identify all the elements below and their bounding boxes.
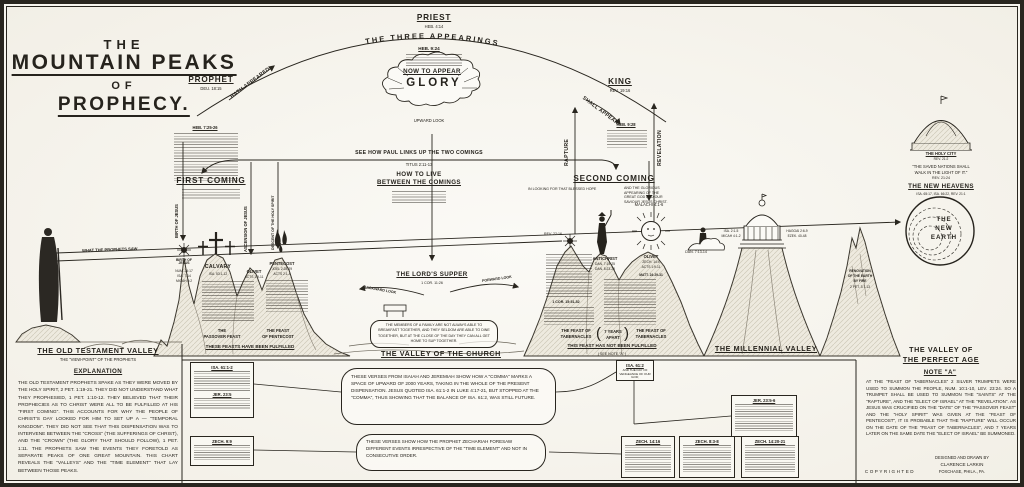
fine-print-pentecost-face	[266, 280, 308, 312]
temple-mount	[704, 248, 820, 356]
zechariah-bubble: THESE VERSES SHOW HOW THE PROPHET ZECHAR…	[356, 434, 546, 471]
valley-of-church-label: THE VALLEY OF THE CHURCH	[381, 350, 501, 357]
birth-peak-ref-1: NUM. 24:17	[175, 270, 193, 273]
holy-city-label: THE HOLY CITY	[926, 152, 957, 156]
holy-city-icon	[910, 96, 972, 150]
bethlehem-star-icon	[177, 243, 191, 257]
fine-print-zech99	[194, 445, 250, 461]
verse-box-zech1416: ZECH. 14:16	[621, 436, 675, 478]
heb924-ref: HEB. 9:24	[418, 47, 439, 52]
birth-of-jesus-line-label: BIRTH OF JESUS	[175, 204, 179, 238]
credits-line2: CLARENCE LARKIN	[941, 463, 984, 468]
olivet1-peak-ref: ACTS 1:9-11	[245, 276, 264, 279]
olivet2-ref-3: MATT. 24:29-31	[639, 274, 663, 277]
title-the: THE	[104, 38, 145, 51]
heb928-ref: HEB. 9:28	[616, 123, 635, 127]
passover-feast-line1: THE	[218, 329, 226, 333]
glory-label: GLORY	[406, 78, 461, 90]
lords-supper-ref: 1 COR. 11:26	[421, 282, 443, 286]
comma-bubble: THESE VERSES FROM ISAIAH AND JEREMIAH SH…	[341, 368, 556, 425]
brace-right: )	[624, 326, 629, 341]
saved-nations-ref: REV. 21:24	[932, 177, 950, 181]
explanation-title: EXPLANATION	[74, 369, 122, 375]
prophet-figure	[16, 228, 80, 342]
descent-holy-spirit-line-label: DESCENT OF THE HOLY SPIRIT	[272, 195, 276, 250]
verse-box-zech1420-ref: ZECH. 14:20-21	[744, 439, 796, 444]
priest-ref: HEB. 4:14	[425, 25, 444, 29]
note-a-body: AT THE "FEAST OF TABERNACLES" 2 SILVER T…	[866, 379, 1016, 438]
seven-years-line2: APART	[606, 336, 620, 340]
antichrist-ref-1: DAN. 7:19-25	[595, 263, 615, 266]
antichrist-figure	[597, 210, 611, 254]
prophecy-chart: THE THREE APPEARINGS	[0, 0, 1024, 487]
ascension-line-label: ASCENSION OF JESUS	[244, 206, 248, 252]
new-heavens-label: THE NEW HEAVENS	[908, 184, 974, 190]
king-ref: REV. 19:16	[610, 89, 631, 93]
lords-supper-label: THE LORD'S SUPPER	[396, 272, 467, 278]
priest-label: PRIEST	[417, 14, 451, 22]
fine-print-jer235	[194, 398, 250, 410]
now-to-appear-label: NOW TO APPEAR	[403, 69, 461, 75]
olivet2-ref-1: ZECH. 14:4	[642, 261, 659, 264]
pentecost-peak-ref-1: JOEL 2:28-29	[272, 268, 292, 271]
see-note-a-label: ( SEE NOTE "A" )	[598, 353, 627, 357]
birth-peak-ref-3: MICAH 5:2	[176, 280, 192, 283]
renovation-line1: RENOVATION	[849, 270, 871, 273]
upward-look-label: UPWARD LOOK	[412, 118, 446, 125]
first-coming-label: FIRST COMING	[176, 177, 245, 185]
verse-box-isa6112: ISA. 61:1-2 JER. 23:5	[190, 362, 254, 418]
olivet2-peak-name: OLIVET	[644, 255, 659, 259]
perfect-age-label-2: THE PERFECT AGE	[903, 356, 979, 363]
birth-peak-ref-2: ISA. 7:14	[177, 275, 191, 278]
fine-print-zech838	[683, 445, 731, 473]
feast-not-fulfilled-label: THIS FEAST HAS NOT BEEN FULFILLED	[567, 344, 656, 349]
king-label: KING	[608, 78, 632, 86]
heb725-ref: HEB. 7:25-26	[192, 126, 217, 130]
credits-line1: DESIGNED AND DRAWN BY	[935, 456, 989, 460]
pentecost-feast-line2: OF PENTECOST	[262, 335, 294, 339]
new-earth-line2: NEW	[935, 226, 952, 232]
fine-print-heb928	[607, 130, 647, 148]
temple-ref-right-2: EZEK. 40-48	[788, 235, 807, 238]
renovation-ref: 2 PET. 3:7-13	[850, 286, 870, 289]
fine-print-heb725	[174, 133, 238, 181]
malachi-ref: MALACHI 4:1-6	[635, 203, 664, 207]
calvary-crosses-icon	[198, 232, 235, 255]
fine-print-zech1416	[625, 445, 671, 473]
titus-ref: TITUS 2:11-13	[406, 163, 433, 167]
renovation-line3: BY FIRE	[854, 280, 867, 283]
verse-box-zech99-ref: ZECH. 9:9	[193, 439, 251, 444]
how-to-live-label: HOW TO LIVE	[396, 172, 441, 178]
olivet2-ref-2: ACTS 1:9-11	[642, 266, 661, 269]
saved-nations-quote-2: WALK IN THE LIGHT OF IT."	[915, 171, 968, 175]
ot-valley-sub-label: THE "VIEW-POINT" OF THE PROPHETS	[60, 358, 136, 362]
verse-box-isa612: ISA. 61:2 AND THE DAY OF VENGEANCE OF OU…	[616, 360, 654, 381]
son-of-man-cloud-figure	[688, 228, 725, 251]
verse-box-jer2356-ref: JER. 23:5-6	[734, 398, 794, 403]
verse-box-isa612-line: AND THE DAY OF VENGEANCE OF OUR GOD;	[619, 369, 651, 380]
supper-table-icon	[384, 305, 406, 317]
seven-years-line1: 7 YEARS	[604, 330, 621, 334]
pentecost-flames-icon	[275, 229, 287, 252]
fine-print-olivet2-face	[604, 279, 656, 325]
pentecost-feast-line1: THE FEAST	[267, 329, 290, 333]
calvary-peak-ref: ISA. 53:1-12	[209, 273, 227, 276]
olivet1-peak-name: OLIVET	[247, 270, 262, 274]
holy-city-ref: REV. 21:2	[934, 158, 949, 161]
fine-print-isa6112	[194, 371, 250, 391]
millennial-valley-label: THE MILLENNIAL VALLEY	[715, 345, 817, 352]
fine-print-first-coming	[182, 189, 240, 200]
revelation-line-label: REVELATION	[658, 130, 663, 166]
ot-valley-label: THE OLD TESTAMENT VALLEY	[37, 347, 158, 354]
tabernacles2-line1: THE FEAST OF	[636, 329, 666, 333]
verse-box-zech99: ZECH. 9:9	[190, 436, 254, 466]
antichrist-ref-2: DAN. 8:23-25	[595, 268, 615, 271]
morning-star-icon	[563, 234, 577, 248]
copyright-label: COPYRIGHTED	[865, 470, 915, 475]
prophet-ref: DEU. 18:15	[200, 87, 221, 91]
fine-print-cor-face	[544, 307, 594, 325]
prophet-label: PROPHET	[188, 76, 233, 84]
verse-box-jer235-ref: JER. 23:5	[193, 392, 251, 397]
passover-feast-line2: PASSOVER FEAST	[203, 335, 240, 339]
brace-left: (	[596, 326, 601, 341]
see-how-paul-label: SEE HOW PAUL LINKS UP THE TWO COMINGS	[355, 151, 483, 156]
second-coming-left-caption: IN LOOKING FOR THAT BLESSED HOPE	[528, 188, 596, 192]
temple-ref-left-1: ISA. 2:1-5	[724, 230, 739, 233]
title-prophecy: PROPHECY.	[58, 95, 190, 117]
fine-print-calvary-face	[202, 281, 254, 321]
verse-box-isa6112-ref: ISA. 61:1-2	[193, 365, 251, 370]
rapture-line-label: RAPTURE	[565, 139, 570, 166]
calvary-peak-name: CALVARY	[205, 265, 231, 270]
antichrist-peak-name: ANTICHRIST	[593, 257, 618, 261]
renovation-mountain	[820, 228, 900, 356]
fine-print-star-face	[546, 254, 592, 298]
perfect-age-label-1: THE VALLEY OF	[909, 346, 973, 353]
explanation-body: THE OLD TESTAMENT PROPHETS SPAKE AS THEY…	[18, 380, 178, 475]
dan713-ref: DAN. 7:13-14	[685, 251, 707, 255]
verse-box-zech1420: ZECH. 14:20-21	[741, 436, 799, 478]
rev2216-ref: REV. 22:16	[544, 233, 562, 237]
feasts-fulfilled-label: THESE FEASTS HAVE BEEN FULFILLED	[206, 345, 295, 350]
fine-print-heb924	[406, 54, 462, 67]
tabernacles1-line1: THE FEAST OF	[561, 329, 591, 333]
credits-line3: FOXCHASE, PHILA., PA.	[939, 470, 985, 474]
verse-box-zech838: ZECH. 8:3-8	[679, 436, 735, 478]
title-mountain-peaks: MOUNTAIN PEAKS	[12, 52, 237, 76]
title-of: OF	[111, 81, 136, 92]
note-a-title: NOTE "A"	[924, 370, 956, 376]
new-heavens-refs: ISA. 65:17, ISA. 66:22, REV. 21:1	[916, 193, 965, 196]
tabernacles2-line2: TABERNACLES	[636, 335, 667, 339]
temple-ref-left-2: MICAH 4:1-2	[721, 235, 740, 238]
saved-nations-quote-1: "THE SAVED NATIONS SHALL	[912, 165, 970, 169]
verse-box-zech1416-ref: ZECH. 14:16	[624, 439, 672, 444]
between-comings-label: BETWEEN THE COMINGS	[377, 180, 461, 186]
cor1551-ref: 1 COR. 15:51-52	[552, 301, 579, 305]
verse-box-jer2356: JER. 23:5-6	[731, 395, 797, 437]
verse-box-zech838-ref: ZECH. 8:3-8	[682, 439, 732, 444]
birth-peak-name: BIRTH OF JESUS	[171, 259, 197, 266]
temple-icon	[738, 194, 786, 248]
new-earth-line3: EARTH	[931, 235, 957, 241]
family-supper-box: THE MEMBERS OF A FAMILY ARE NOT ALWAYS A…	[370, 320, 498, 348]
new-earth-line1: THE	[936, 217, 951, 223]
pentecost-peak-name: PENTECOST	[269, 262, 294, 266]
pentecost-peak-ref-2: ACTS 2:1-4	[273, 273, 290, 276]
second-coming-label: SECOND COMING	[573, 175, 654, 183]
fine-print-zech1420	[745, 445, 795, 473]
temple-ref-right-1: HAGGAI 2:6-9	[786, 230, 807, 233]
fine-print-jer2356	[735, 404, 793, 432]
tabernacles1-line2: TABERNACLES	[561, 335, 592, 339]
fine-print-between	[392, 191, 446, 204]
renovation-line2: OF THE EARTH	[848, 275, 872, 278]
